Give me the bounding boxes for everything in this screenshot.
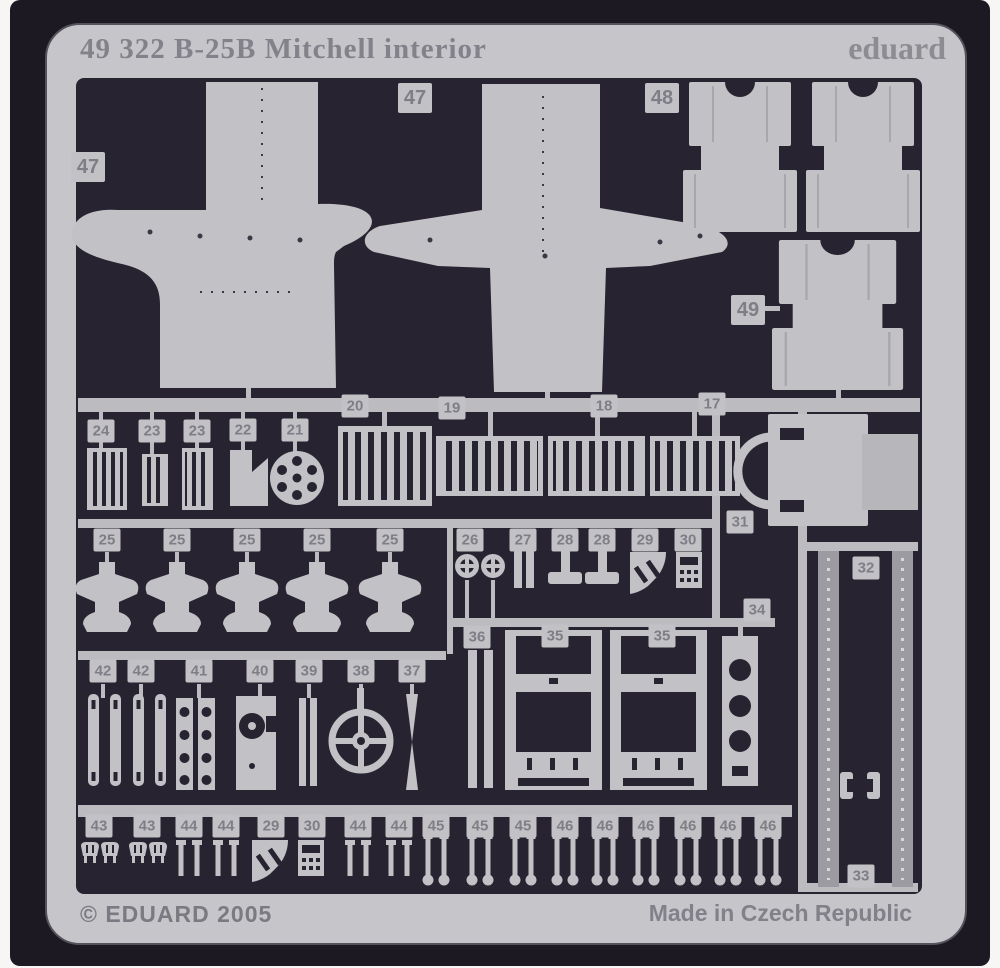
part-number-tag: 25 [164,529,191,552]
part-number-tag: 29 [632,529,659,552]
part-number-tag: 30 [299,815,326,838]
part-number-tag: 31 [727,511,754,534]
part-number-tag: 47 [398,83,432,113]
part-number-tag: 23 [139,420,166,443]
part-number-tag: 25 [304,529,331,552]
part-number-tag: 21 [282,419,309,442]
part-number-tag: 37 [399,660,426,683]
part-number-tag: 47 [71,152,105,182]
part-number-tag: 40 [247,660,274,683]
part-number-tag: 48 [645,83,679,113]
part-number-tag: 43 [134,815,161,838]
part-number-tag: 46 [552,815,579,838]
part-number-tag: 26 [457,529,484,552]
part-number-tag: 20 [342,395,369,418]
part-number-tag: 22 [230,419,257,442]
part-number-tag: 17 [699,393,726,416]
part-number-tag: 24 [88,420,115,443]
part-number-tag: 46 [633,815,660,838]
part-number-tag: 44 [345,815,372,838]
part-number-tag: 32 [853,557,880,580]
part-number-tag: 42 [90,660,117,683]
part-number-tag: 18 [591,395,618,418]
part-number-tag: 46 [755,815,782,838]
part-number-tag: 28 [552,529,579,552]
photoetch-sheet-photo: 49 322 B-25B Mitchell interior eduard © … [0,0,1000,968]
part-number-tag: 44 [213,815,240,838]
part-number-tag: 27 [510,529,537,552]
part-number-tag: 35 [649,625,676,648]
part-number-tag: 45 [423,815,450,838]
part-number-tag: 25 [94,529,121,552]
part-number-tag: 44 [386,815,413,838]
part-number-tag: 33 [848,865,875,888]
part-number-tag: 46 [592,815,619,838]
part-number-tag: 46 [715,815,742,838]
part-number-tag: 30 [675,529,702,552]
part-number-tag: 29 [258,815,285,838]
part-number-tag: 35 [542,625,569,648]
part-tags-layer: 4747484920191817242323222131252525252526… [0,0,1000,968]
part-number-tag: 46 [675,815,702,838]
part-number-tag: 41 [186,660,213,683]
part-number-tag: 34 [744,599,771,622]
part-number-tag: 36 [464,626,491,649]
part-number-tag: 43 [86,815,113,838]
part-number-tag: 25 [377,529,404,552]
part-number-tag: 45 [510,815,537,838]
part-number-tag: 38 [348,660,375,683]
part-number-tag: 25 [234,529,261,552]
part-number-tag: 45 [467,815,494,838]
part-number-tag: 44 [176,815,203,838]
part-number-tag: 28 [589,529,616,552]
part-number-tag: 39 [296,660,323,683]
part-number-tag: 49 [731,295,765,325]
part-number-tag: 23 [184,420,211,443]
part-number-tag: 42 [128,660,155,683]
part-number-tag: 19 [439,397,466,420]
